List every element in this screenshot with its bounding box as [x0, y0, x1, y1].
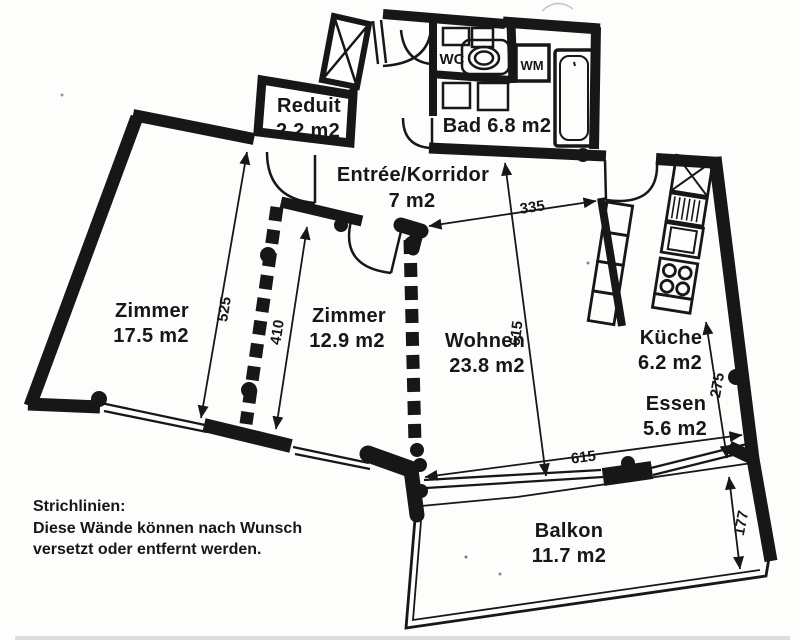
wall-balcony-door-chunk — [603, 470, 652, 477]
note-line-2: Diese Wände können nach Wunsch — [33, 520, 302, 537]
room-label-wohnen: Wohnen — [445, 330, 525, 352]
bathtub-drain-icon — [574, 62, 575, 66]
room-label-entree: Entrée/Korridor — [337, 164, 489, 186]
walls — [28, 14, 771, 561]
room-area-zimmer-mitte: 12.9 m2 — [309, 330, 385, 352]
bath-cabinet-icon — [472, 28, 493, 47]
dimension-177: 177 — [729, 477, 752, 569]
window-zimmer-mitte — [293, 447, 370, 469]
room-label-essen: Essen — [646, 393, 706, 415]
floor-plan-svg: 525 410 335 615 615 275 177 Zimmer 17.5 — [0, 0, 800, 641]
room-label-kueche: Küche — [640, 327, 703, 349]
room-label-balkon: Balkon — [535, 520, 603, 542]
wall-bottom-middle — [204, 425, 291, 446]
wall-right — [715, 157, 771, 561]
dashed-wall-right — [410, 240, 415, 444]
dimension-label: 177 — [731, 509, 752, 537]
floor-plan-page: 525 410 335 615 615 275 177 Zimmer 17.5 — [0, 0, 800, 641]
room-area-entree: 7 m2 — [389, 190, 436, 212]
kitchen-cabinet-column — [588, 202, 632, 325]
toilet-bowl-icon — [475, 52, 493, 65]
room-area-essen: 5.6 m2 — [643, 418, 707, 440]
room-label-zimmer-links: Zimmer — [115, 300, 189, 322]
room-label-bad: Bad 6.8 m2 — [443, 115, 552, 137]
sink-basin — [668, 227, 697, 253]
dimension-label: 615 — [570, 447, 597, 467]
sink-icon — [661, 222, 703, 258]
dimension-525: 525 — [201, 152, 247, 418]
bathtub-inner — [560, 56, 588, 140]
wall-left — [30, 117, 137, 406]
note-line-1: Strichlinien: — [33, 498, 125, 515]
legend-note: Strichlinien: Diese Wände können nach Wu… — [33, 498, 302, 558]
wall-top-wc — [383, 14, 505, 24]
wall-top-bad — [503, 22, 600, 29]
room-area-kueche: 6.2 m2 — [638, 352, 702, 374]
room-area-balkon: 11.7 m2 — [532, 545, 606, 567]
dimension-label: 335 — [519, 197, 546, 218]
fixture-label-wm: WM — [520, 58, 543, 73]
room-area-wohnen: 23.8 m2 — [449, 355, 525, 377]
zimmer-mitte-door — [349, 221, 402, 273]
room-area-zimmer-links: 17.5 m2 — [113, 325, 189, 347]
window-zimmer-links — [101, 403, 207, 432]
entrance-door-arc — [383, 28, 431, 66]
room-label-zimmer-mitte: Zimmer — [312, 305, 386, 327]
room-label-reduit: Reduit — [277, 95, 341, 117]
fixture-label-wc: WC — [440, 51, 465, 68]
wall-corner-piece — [368, 454, 410, 469]
wall-zimmer-mitte-top — [281, 202, 362, 221]
dimension-label: 275 — [707, 371, 728, 399]
kitchen-door — [605, 160, 657, 201]
bad-door — [403, 118, 432, 148]
cabinet-icon — [593, 261, 623, 295]
wall-wc-wm-divider — [511, 23, 513, 83]
counter-end — [652, 293, 692, 313]
kitchen-counter — [652, 155, 714, 313]
dimension-label: 410 — [267, 319, 288, 346]
zimmer-links-door — [267, 152, 315, 203]
wall-zimmer-links-top — [133, 115, 254, 139]
entry-door-jamb — [373, 20, 386, 64]
washbasin-icon — [478, 83, 508, 110]
note-line-3: versetzt oder entfernt werden. — [33, 541, 262, 558]
shower-tray-icon — [443, 83, 470, 108]
drainer-hatch — [672, 196, 700, 222]
wall-bottom-left — [28, 404, 100, 407]
dimension-label: 525 — [214, 296, 235, 323]
room-area-reduit: 2.2 m2 — [276, 120, 340, 142]
